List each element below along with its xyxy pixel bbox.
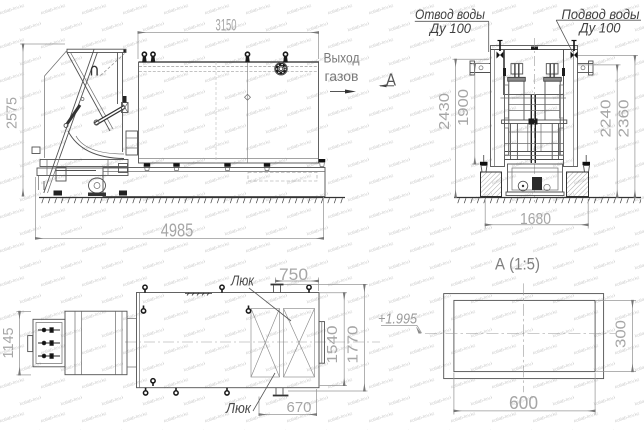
svg-text:600: 600 [509,392,538,413]
svg-text:670: 670 [287,399,312,416]
svg-text:А (1:5): А (1:5) [495,256,540,274]
svg-text:А: А [386,70,396,90]
svg-text:газов: газов [325,69,359,84]
svg-text:2240: 2240 [599,100,615,138]
svg-text:Люк: Люк [230,274,255,290]
svg-text:2360: 2360 [616,100,632,138]
svg-text:750: 750 [279,266,308,284]
svg-text:Выход: Выход [324,51,360,66]
svg-text:1145: 1145 [1,328,17,359]
svg-text:3150: 3150 [216,16,237,35]
svg-text:4985: 4985 [161,220,194,241]
svg-text:1540: 1540 [325,326,341,364]
svg-text:2575: 2575 [5,97,21,129]
svg-text:1900: 1900 [456,89,472,126]
svg-text:Ду 100: Ду 100 [578,20,621,36]
svg-text:1680: 1680 [520,211,551,228]
svg-text:300: 300 [614,320,630,348]
svg-text:Люк: Люк [225,401,252,417]
svg-text:2430: 2430 [437,93,453,130]
svg-text:Ду 100: Ду 100 [428,20,471,36]
svg-text:1770: 1770 [346,326,362,364]
